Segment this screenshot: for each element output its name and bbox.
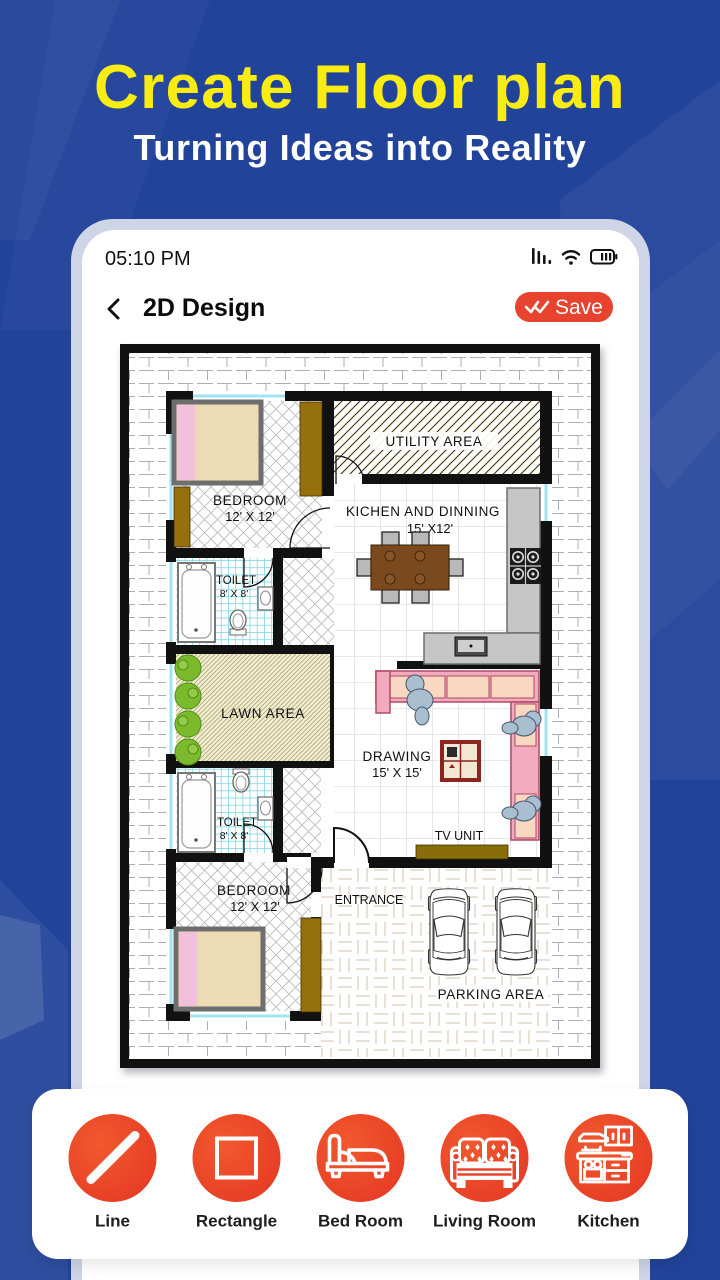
svg-text:Living Room: Living Room xyxy=(433,1212,536,1231)
svg-text:KICHEN AND DINNING: KICHEN AND DINNING xyxy=(346,504,500,519)
svg-text:12' X 12': 12' X 12' xyxy=(230,899,280,914)
svg-text:Kitchen: Kitchen xyxy=(577,1212,639,1231)
svg-text:BEDROOM: BEDROOM xyxy=(213,493,287,508)
svg-text:BEDROOM: BEDROOM xyxy=(217,883,291,898)
svg-text:Rectangle: Rectangle xyxy=(196,1212,277,1231)
svg-text:LAWN AREA: LAWN AREA xyxy=(221,706,305,721)
svg-text:TV UNIT: TV UNIT xyxy=(435,829,484,843)
svg-text:DRAWING: DRAWING xyxy=(363,749,432,764)
svg-text:ENTRANCE: ENTRANCE xyxy=(335,893,404,907)
svg-text:12' X 12': 12' X 12' xyxy=(225,509,275,524)
svg-text:TOILET: TOILET xyxy=(217,817,257,829)
svg-text:UTILITY AREA: UTILITY AREA xyxy=(386,434,483,449)
svg-text:PARKING AREA: PARKING AREA xyxy=(438,987,545,1002)
svg-text:TOILET: TOILET xyxy=(216,575,256,587)
svg-text:8' X 8': 8' X 8' xyxy=(220,588,249,600)
svg-text:Line: Line xyxy=(95,1212,130,1231)
svg-text:Bed Room: Bed Room xyxy=(318,1212,403,1231)
svg-text:15' X 15': 15' X 15' xyxy=(372,765,422,780)
